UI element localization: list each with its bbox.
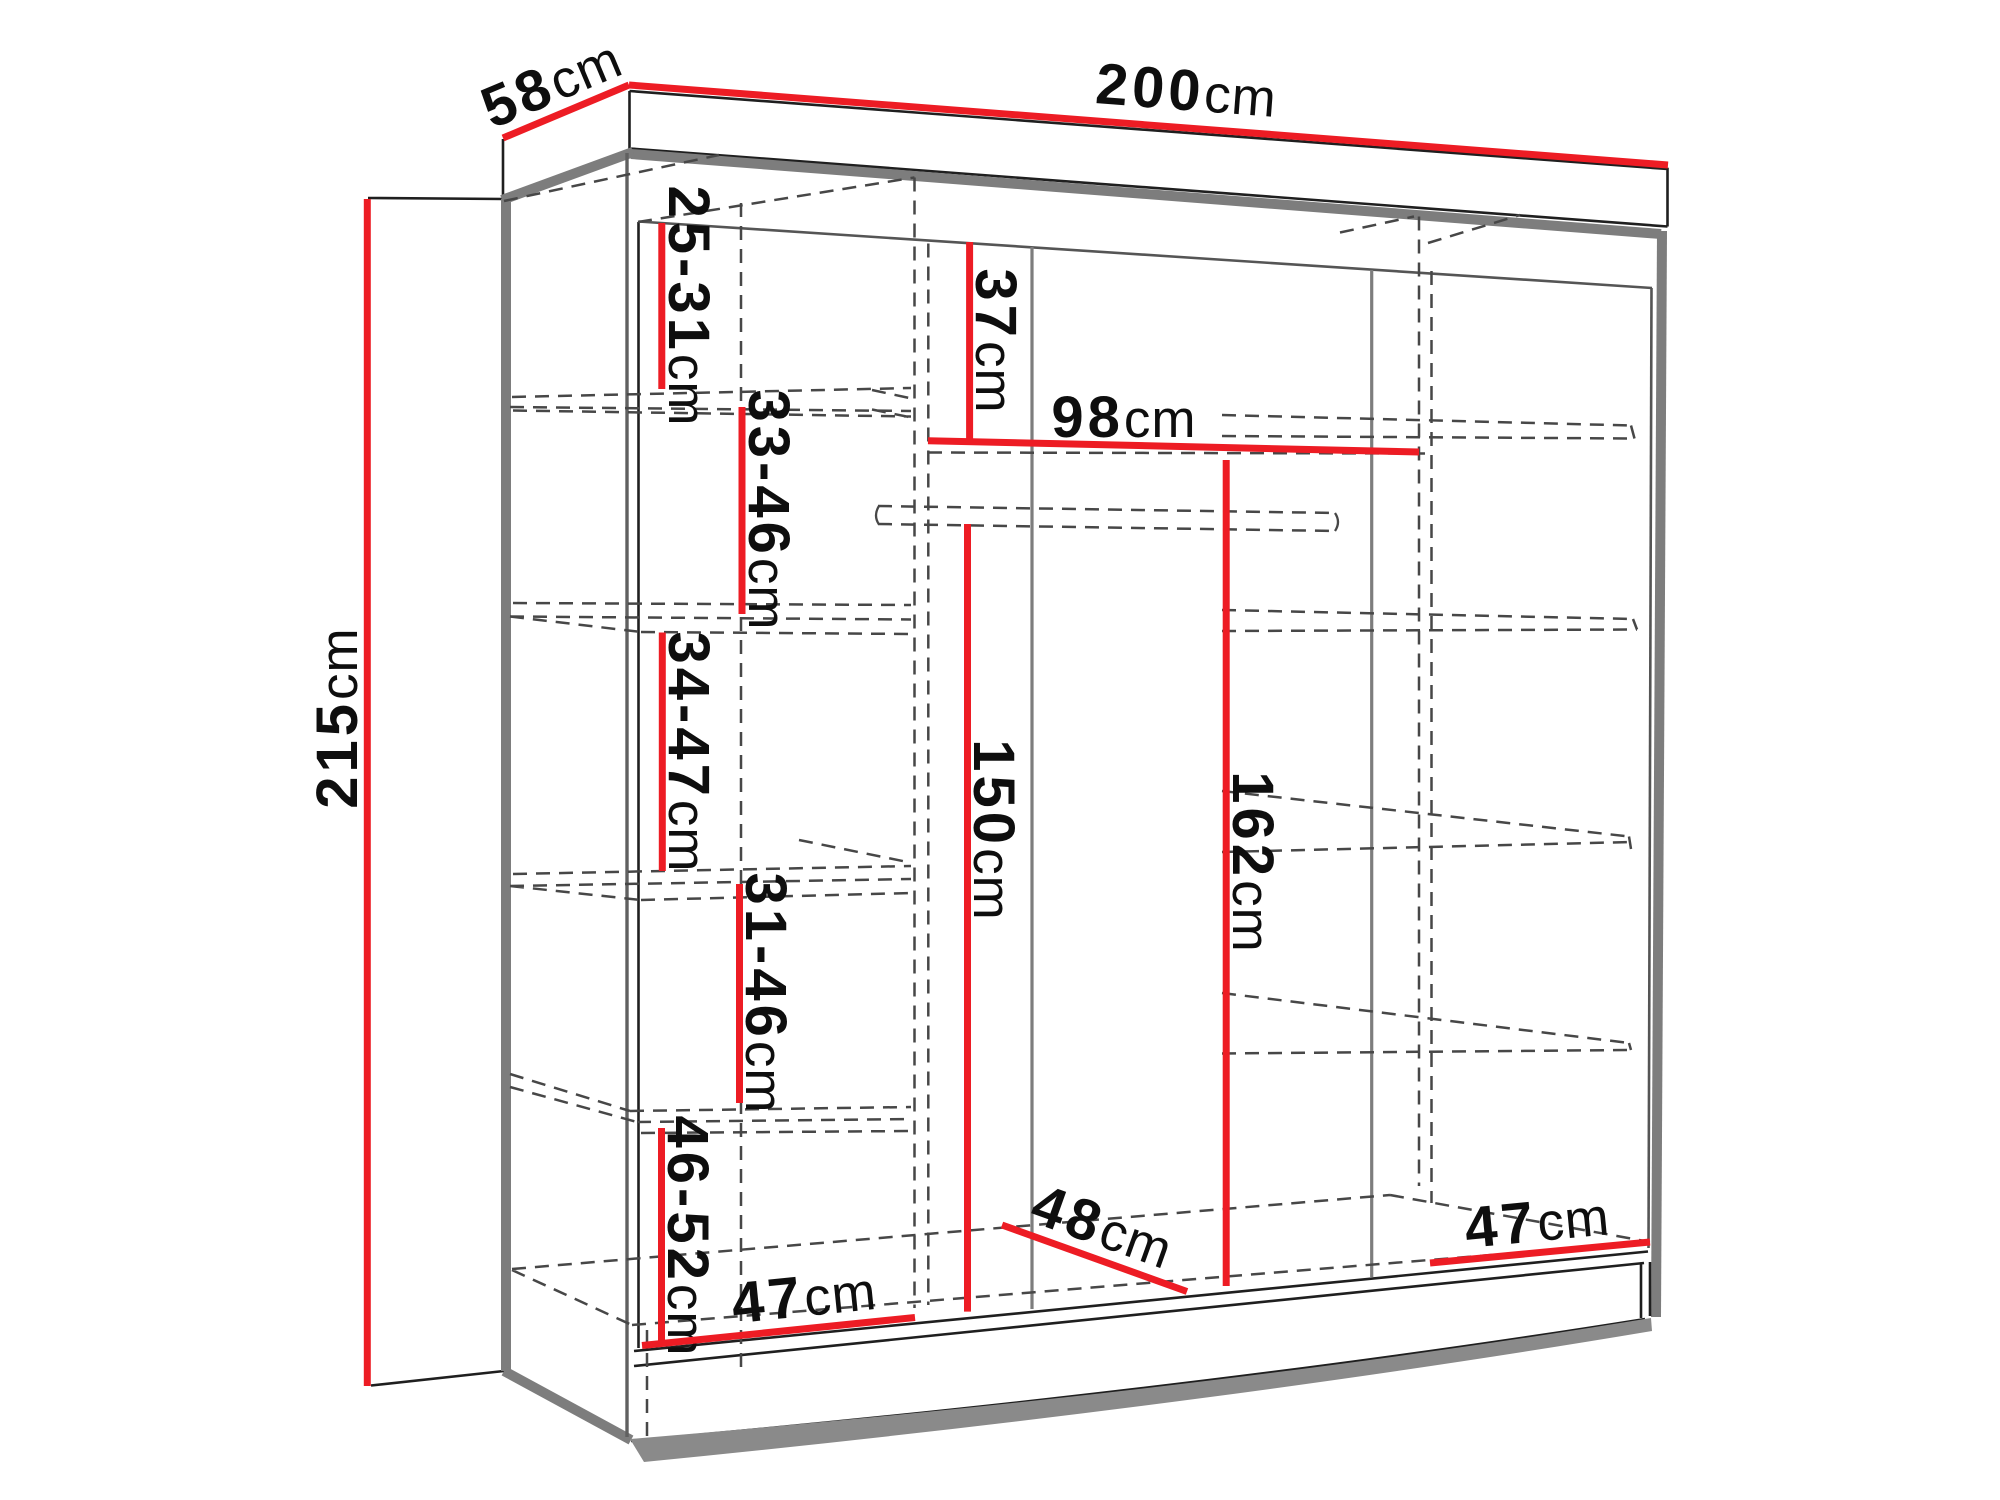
svg-text:46-52cm: 46-52cm [655,1116,720,1357]
svg-text:25-31cm: 25-31cm [656,186,721,427]
svg-text:34-47cm: 34-47cm [656,632,721,873]
svg-text:150cm: 150cm [961,739,1026,920]
svg-text:31-46cm: 31-46cm [733,873,798,1114]
svg-text:162cm: 162cm [1220,771,1285,952]
svg-text:37cm: 37cm [963,268,1028,413]
svg-text:33-46cm: 33-46cm [736,390,801,631]
svg-text:98cm: 98cm [1051,385,1196,450]
svg-text:215cm: 215cm [305,627,370,808]
